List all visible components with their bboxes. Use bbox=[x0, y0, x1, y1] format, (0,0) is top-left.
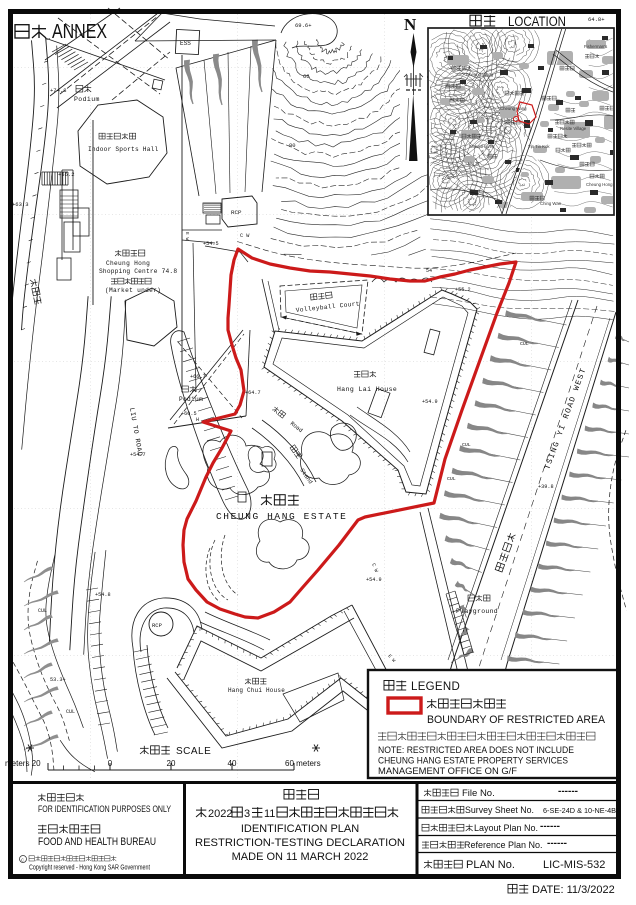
svg-text:Ching Wan: Ching Wan bbox=[540, 201, 562, 206]
svg-text:Hang Chui House: Hang Chui House bbox=[228, 687, 285, 694]
svg-text:RCP: RCP bbox=[231, 209, 242, 216]
svg-text:LEGEND: LEGEND bbox=[411, 681, 460, 693]
svg-text:CUL: CUL bbox=[520, 341, 529, 347]
svg-text:Indoor Sports Hall: Indoor Sports Hall bbox=[88, 146, 159, 153]
svg-text:2022: 2022 bbox=[208, 808, 232, 820]
svg-text:RESTRICTION-TESTING DECLARATIO: RESTRICTION-TESTING DECLARATION bbox=[195, 837, 405, 849]
svg-text:11: 11 bbox=[264, 808, 275, 820]
svg-text:E W: E W bbox=[184, 232, 190, 241]
svg-text:+54.9: +54.9 bbox=[422, 399, 438, 405]
svg-text:PLAN No.: PLAN No. bbox=[466, 859, 515, 871]
svg-text:Yin Tin Kok: Yin Tin Kok bbox=[528, 144, 550, 149]
svg-text:File No.: File No. bbox=[462, 788, 495, 799]
svg-text:CUL: CUL bbox=[462, 442, 471, 448]
svg-text:Liu To: Liu To bbox=[468, 161, 480, 166]
svg-text:Resite Village: Resite Village bbox=[560, 126, 587, 131]
svg-text:Shopping Centre 74.8: Shopping Centre 74.8 bbox=[99, 268, 177, 275]
svg-text:66: 66 bbox=[303, 73, 310, 80]
svg-text:60 meters: 60 meters bbox=[285, 759, 321, 768]
svg-text:CUL: CUL bbox=[447, 476, 456, 482]
svg-text:Hang Lai House: Hang Lai House bbox=[337, 386, 397, 393]
svg-text:Cheung Hong: Cheung Hong bbox=[106, 260, 150, 267]
svg-text:64.8+: 64.8+ bbox=[588, 16, 605, 23]
svg-text:LIC-MIS-532: LIC-MIS-532 bbox=[543, 859, 605, 871]
svg-text:------: ------ bbox=[547, 838, 567, 849]
svg-text:FOOD AND HEALTH BUREAU: FOOD AND HEALTH BUREAU bbox=[38, 836, 156, 848]
svg-text:+63.3: +63.3 bbox=[12, 201, 29, 208]
svg-text:LOCATION: LOCATION bbox=[508, 14, 566, 29]
svg-text:Cheung Hang: Cheung Hang bbox=[500, 106, 527, 111]
svg-text:Layout Plan No.: Layout Plan No. bbox=[474, 823, 538, 833]
svg-text:BOUNDARY OF RESTRICTED AREA: BOUNDARY OF RESTRICTED AREA bbox=[427, 714, 606, 726]
svg-text:ANNEX: ANNEX bbox=[52, 21, 107, 43]
svg-text:H: H bbox=[196, 417, 199, 423]
svg-text:CHEUNG HANG ESTATE: CHEUNG HANG ESTATE bbox=[216, 511, 347, 522]
svg-text:+55.2: +55.2 bbox=[455, 287, 471, 293]
svg-text:NOTE: RESTRICTED AREA DOES NOT: NOTE: RESTRICTED AREA DOES NOT INCLUDE bbox=[378, 745, 574, 755]
svg-text:Survey Sheet No.: Survey Sheet No. bbox=[465, 805, 534, 815]
svg-text:+54.9: +54.9 bbox=[366, 577, 382, 583]
svg-text:+64.7: +64.7 bbox=[245, 390, 261, 396]
svg-text:CUL: CUL bbox=[66, 709, 75, 715]
svg-text:FOR IDENTIFICATION PURPOSES ON: FOR IDENTIFICATION PURPOSES ONLY bbox=[38, 804, 171, 814]
svg-text:CUL: CUL bbox=[38, 608, 47, 614]
svg-text:Cheung Wang: Cheung Wang bbox=[466, 72, 494, 77]
svg-text:IDENTIFICATION PLAN: IDENTIFICATION PLAN bbox=[241, 823, 359, 835]
svg-text:RCP: RCP bbox=[152, 622, 162, 629]
svg-text:Podium: Podium bbox=[74, 96, 100, 103]
svg-text:Reference Plan No.: Reference Plan No. bbox=[464, 840, 543, 850]
svg-text:ESS: ESS bbox=[180, 40, 191, 47]
svg-text:6-SE-24D & 10-NE-4B: 6-SE-24D & 10-NE-4B bbox=[543, 806, 616, 815]
svg-text:Podium: Podium bbox=[179, 396, 203, 403]
svg-text:3: 3 bbox=[244, 808, 250, 820]
svg-text:Cheung Hong: Cheung Hong bbox=[586, 182, 613, 187]
svg-text:N: N bbox=[404, 15, 417, 34]
svg-text:+74.8: +74.8 bbox=[50, 87, 67, 94]
svg-text:80: 80 bbox=[289, 142, 296, 149]
svg-text:DATE: 11/3/2022: DATE: 11/3/2022 bbox=[532, 884, 615, 896]
svg-text:+54.7: +54.7 bbox=[130, 452, 146, 458]
svg-text:Fisherman's: Fisherman's bbox=[584, 44, 607, 49]
svg-text:SCALE: SCALE bbox=[176, 746, 211, 757]
svg-text:C W: C W bbox=[240, 233, 250, 239]
svg-text:CHEUNG HANG ESTATE PROPERTY SE: CHEUNG HANG ESTATE PROPERTY SERVICES bbox=[378, 756, 568, 766]
svg-text:69.6+: 69.6+ bbox=[295, 22, 312, 29]
svg-text:MountHaven: MountHaven bbox=[470, 144, 495, 149]
svg-text:MANAGEMENT OFFICE ON G/F: MANAGEMENT OFFICE ON G/F bbox=[378, 766, 517, 776]
svg-text:------: ------ bbox=[540, 821, 560, 832]
svg-text:Copyright reserved - Hong Kong: Copyright reserved - Hong Kong SAR Gover… bbox=[29, 865, 150, 872]
svg-text:54: 54 bbox=[426, 268, 432, 274]
svg-text:+54.8: +54.8 bbox=[95, 592, 111, 598]
svg-text:+39.8: +39.8 bbox=[538, 484, 554, 490]
svg-text:------: ------ bbox=[558, 786, 578, 797]
svg-text:MADE ON 11 MARCH 2022: MADE ON 11 MARCH 2022 bbox=[232, 851, 369, 863]
